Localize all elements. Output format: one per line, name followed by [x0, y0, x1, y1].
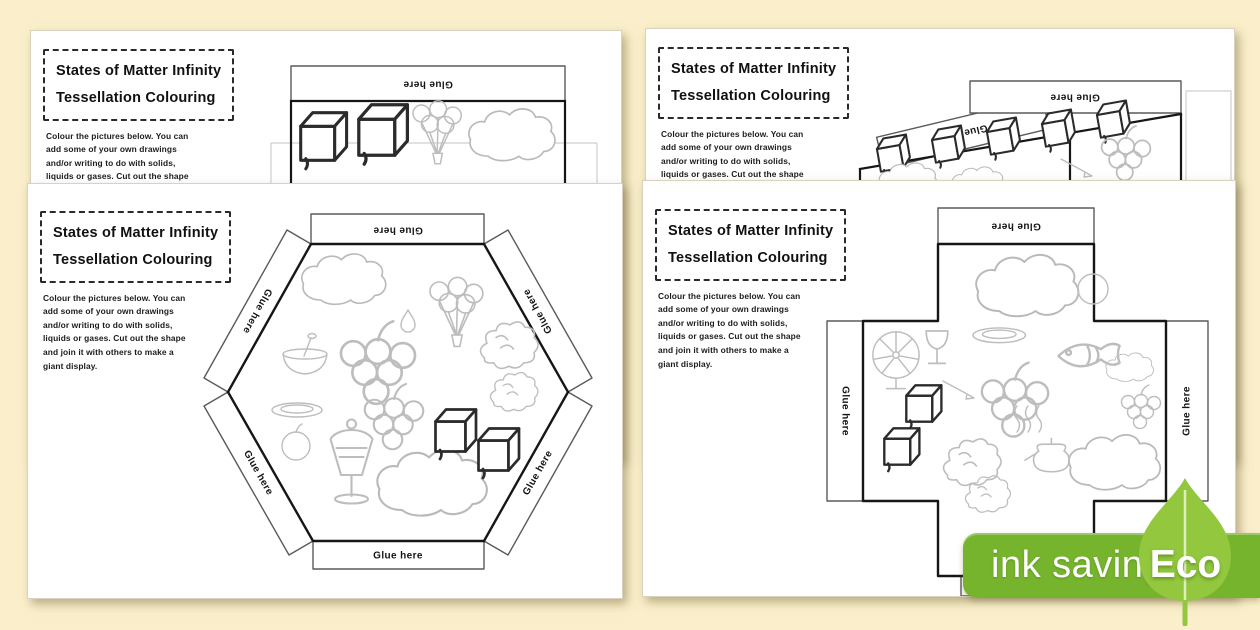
instruction-line: Colour the pictures below. You can — [658, 290, 870, 304]
instruction-line: Colour the pictures below. You can — [43, 292, 255, 306]
worksheet-page-front-left: Glue here Glue here Glue here Glue here … — [27, 183, 623, 599]
worksheet-title-box: States of Matter Infinity Tessellation C… — [658, 47, 849, 119]
glue-tab-label: Glue here — [840, 386, 851, 436]
worksheet-title-line1: States of Matter Infinity — [671, 56, 836, 83]
glue-tab-label: Glue here — [1050, 92, 1100, 103]
instruction-line: giant display. — [658, 358, 870, 372]
ice-cube-doodle — [930, 126, 967, 169]
instruction-line: add some of your own drawings — [661, 141, 873, 155]
cloud-doodle — [469, 109, 555, 161]
eco-label: Eco — [1138, 540, 1233, 590]
worksheet-title-line2: Tessellation Colouring — [56, 85, 221, 112]
instruction-line: add some of your own drawings — [658, 303, 870, 317]
instruction-line: and/or writing to do with solids, — [658, 317, 870, 331]
instruction-line: and/or writing to do with solids, — [43, 319, 255, 333]
instruction-line: and join it with others to make a — [43, 346, 255, 360]
instruction-line: liquids or gases. Cut out the shape — [43, 332, 255, 346]
ice-cube-doodle — [359, 105, 408, 164]
worksheet-title-line1: States of Matter Infinity — [668, 218, 833, 245]
pencil-doodle — [1061, 159, 1092, 177]
worksheet-title-line1: States of Matter Infinity — [53, 220, 218, 247]
glue-tab-label: Glue here — [991, 221, 1041, 232]
doodles — [301, 101, 555, 169]
instruction-line: add some of your own drawings — [46, 143, 258, 157]
instruction-line: Colour the pictures below. You can — [661, 128, 873, 142]
preview-canvas: { "canvas": { "background_color": "#faef… — [0, 0, 1260, 630]
fold-line — [1186, 91, 1231, 186]
instruction-line: liquids or gases. Cut out the shape — [658, 330, 870, 344]
worksheet-title-box: States of Matter Infinity Tessellation C… — [40, 211, 231, 283]
glue-tab-label: Glue here — [373, 225, 423, 236]
glue-tab-label: Glue here — [373, 551, 423, 562]
glue-tab-label: Glue here — [403, 79, 453, 90]
instruction-line: Colour the pictures below. You can — [46, 130, 258, 144]
instruction-line: and/or writing to do with solids, — [661, 155, 873, 169]
worksheet-instructions: Colour the pictures below. You canadd so… — [655, 290, 870, 372]
instruction-line: and/or writing to do with solids, — [46, 157, 258, 171]
ice-cube-doodle — [1040, 110, 1077, 153]
worksheet-title-box: States of Matter Infinity Tessellation C… — [655, 209, 846, 281]
worksheet-instructions: Colour the pictures below. You canadd so… — [40, 292, 255, 374]
instruction-line: and join it with others to make a — [658, 344, 870, 358]
worksheet-title-line1: States of Matter Infinity — [56, 58, 221, 85]
ice-cube-doodle — [301, 113, 347, 169]
glue-tab-label: Glue here — [1182, 386, 1193, 436]
worksheet-title-line2: Tessellation Colouring — [668, 245, 833, 272]
ice-cube-doodle — [985, 118, 1022, 161]
balloons-doodle — [413, 101, 461, 164]
worksheet-title-box: States of Matter Infinity Tessellation C… — [43, 49, 234, 121]
worksheet-title-line2: Tessellation Colouring — [671, 83, 836, 110]
worksheet-title-line2: Tessellation Colouring — [53, 247, 218, 274]
instruction-line: add some of your own drawings — [43, 305, 255, 319]
instruction-line: giant display. — [43, 360, 255, 374]
